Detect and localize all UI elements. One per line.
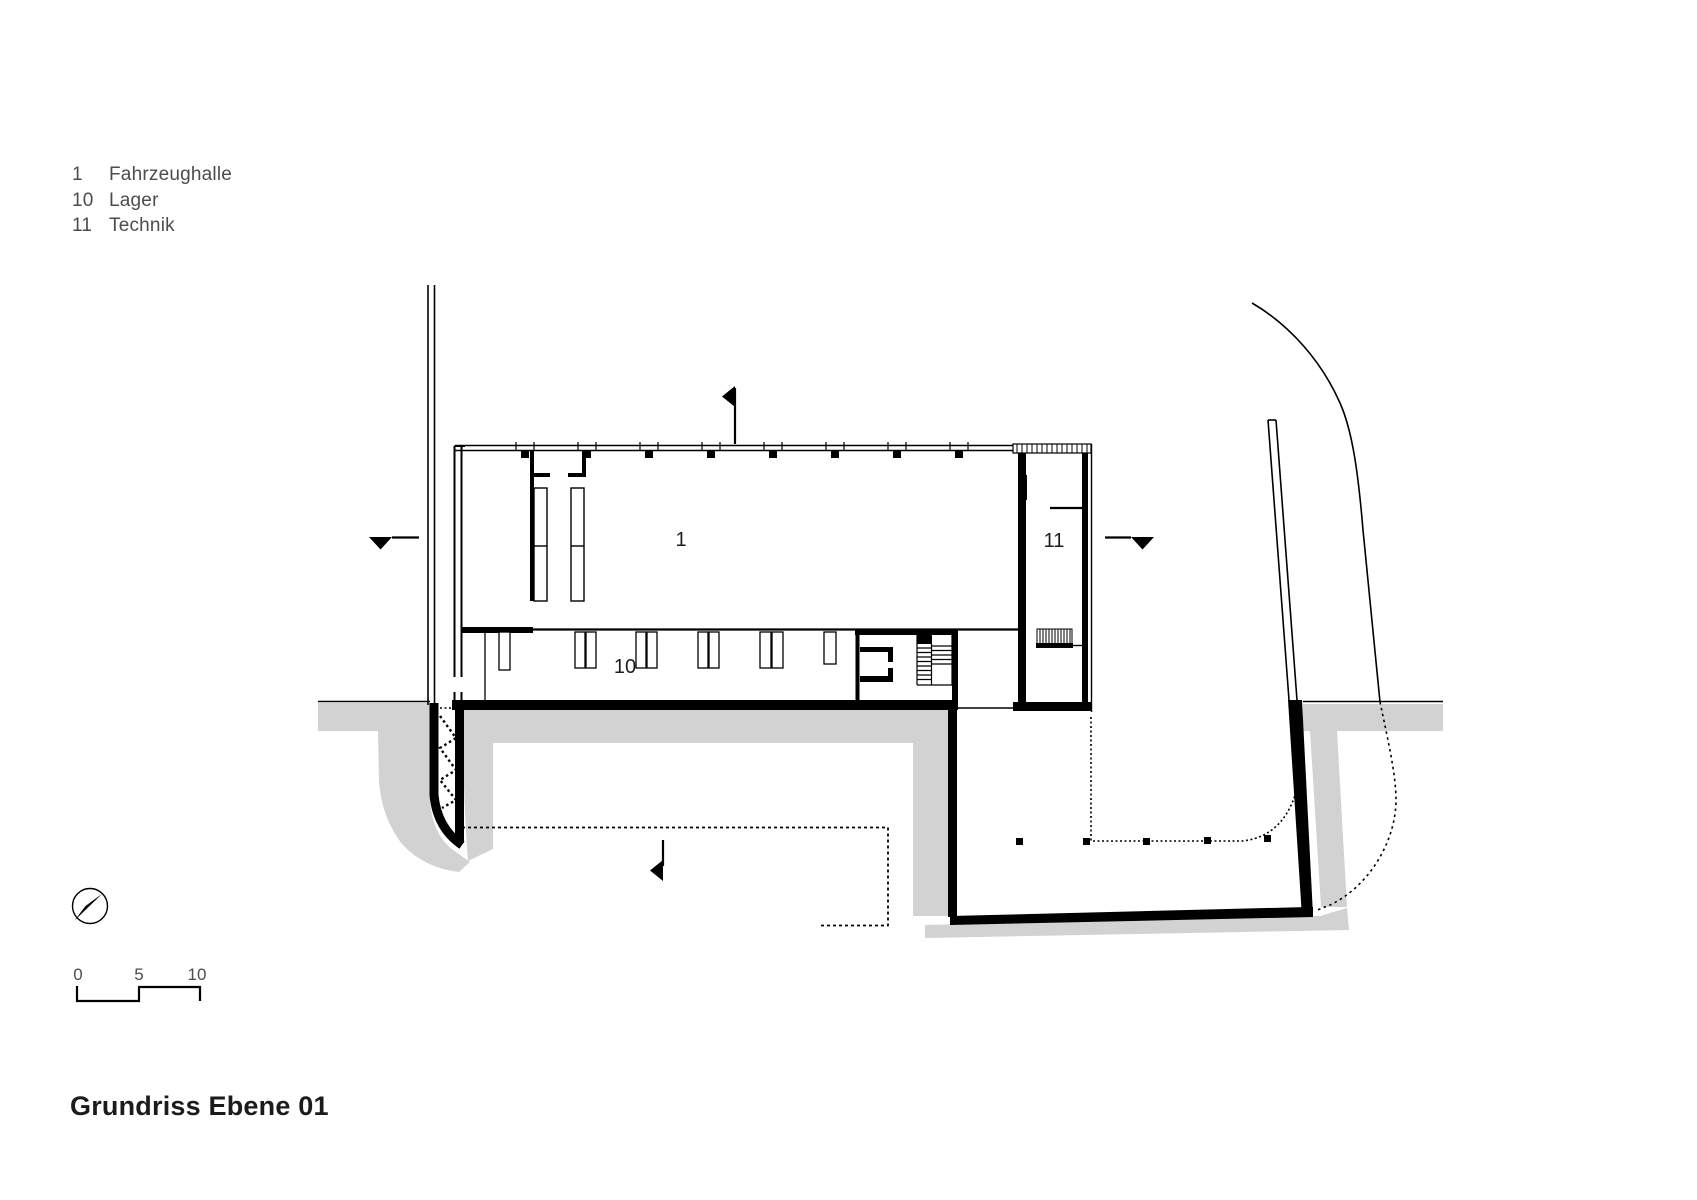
room11-top-hatch — [1013, 444, 1091, 453]
stair-icon — [917, 633, 952, 685]
hall-shafts — [534, 488, 584, 601]
post — [1264, 835, 1271, 842]
room11-wall-right — [1082, 446, 1088, 710]
room-label-lager: 10 — [614, 656, 636, 678]
door-leaf — [636, 632, 646, 668]
room11-wall-left — [1018, 446, 1026, 710]
scale-tick-label: 10 — [188, 965, 207, 984]
door-leaf — [586, 632, 596, 668]
door-leaf — [698, 632, 708, 668]
section-mark-top — [722, 386, 735, 444]
vestibule-wall — [856, 631, 860, 703]
retaining-wall-courtyard-left — [948, 705, 957, 917]
vestibule-wall — [888, 647, 893, 662]
terrain-shading — [318, 703, 1443, 938]
room-label-fahrzeughalle: 1 — [675, 529, 686, 551]
room-label-technik: 11 — [1044, 530, 1065, 552]
radiator-grille — [1036, 629, 1083, 648]
room10-doors — [499, 632, 836, 670]
section-mark-bottom — [650, 840, 663, 881]
door-leaf — [647, 632, 657, 668]
wall-left — [455, 446, 466, 703]
wall-bottom — [452, 700, 958, 710]
section-mark-right — [1105, 537, 1154, 550]
scale-bar-steps — [77, 986, 200, 1001]
stair-landing-block — [917, 633, 932, 644]
scale-tick-label: 5 — [134, 965, 143, 984]
post — [1083, 838, 1090, 845]
vestibule-wall-top — [855, 630, 955, 635]
post — [1204, 837, 1211, 844]
post — [1016, 838, 1023, 845]
canopy-posts — [1016, 835, 1271, 845]
shaft — [571, 488, 584, 601]
partition-stub — [533, 473, 550, 477]
retaining-wall-right — [1288, 700, 1313, 917]
site-wall-left — [428, 285, 435, 705]
vestibule-wall — [888, 668, 893, 676]
wall-top — [455, 446, 1013, 451]
vestibule-wall — [860, 676, 893, 682]
terrain-courtyard-left-band — [913, 708, 949, 916]
dotted-canopy-line — [1091, 717, 1296, 841]
stair-vestibule — [855, 630, 958, 703]
drawing-title: Grundriss Ebene 01 — [70, 1091, 329, 1122]
dotted-projection-line — [462, 828, 888, 926]
post — [1143, 838, 1150, 845]
ramp — [431, 703, 462, 845]
north-arrow-icon — [73, 889, 108, 924]
terrain-right-band — [1303, 704, 1443, 907]
partition-stub — [582, 451, 586, 477]
door-leaf — [824, 632, 836, 664]
room11-block — [1013, 444, 1092, 712]
terrain-left-band — [318, 703, 430, 731]
vestibule-wall-right — [952, 630, 958, 702]
shaft — [534, 488, 547, 601]
floor-plan-drawing: 1 10 11 — [0, 0, 1697, 1200]
section-mark-left — [369, 537, 419, 550]
floor-plan-sheet: 1Fahrzeughalle 10Lager 11Technik — [0, 0, 1697, 1200]
door-leaf — [709, 632, 719, 668]
wall-room10-left-thick — [462, 627, 533, 633]
ramp-slope-zigzag — [440, 716, 456, 808]
room11-wall-bottom — [1013, 702, 1092, 711]
door-leaf — [772, 632, 783, 668]
site-boundary-curve — [1252, 303, 1380, 702]
door-leaf — [575, 632, 585, 668]
door-leaf — [760, 632, 771, 668]
building: 1 10 11 — [452, 442, 1092, 712]
door-leaf — [499, 632, 510, 670]
scale-bar: 0 5 10 — [73, 965, 206, 1001]
retaining-wall-thin — [1268, 420, 1297, 700]
scale-tick-label: 0 — [73, 965, 82, 984]
terrain-under-building-band — [463, 706, 948, 743]
